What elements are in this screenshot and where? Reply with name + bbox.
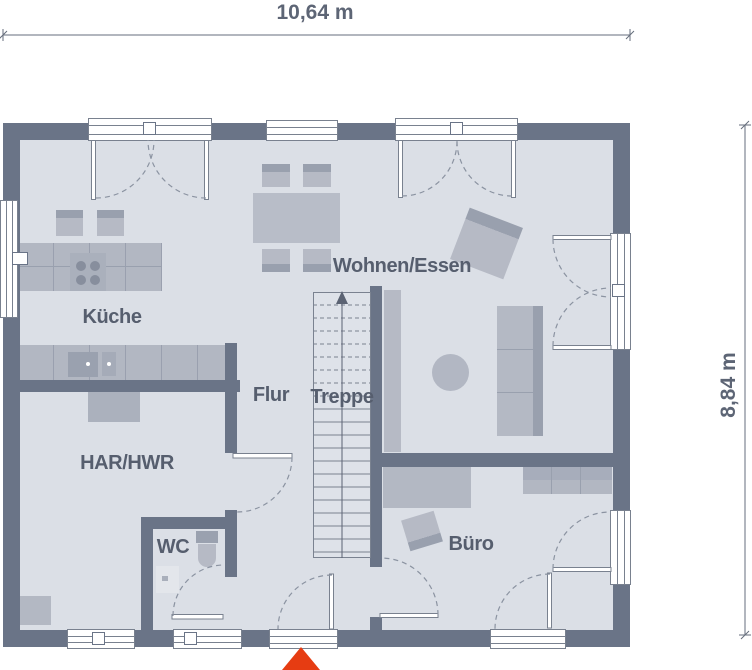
linework-overlay: [0, 0, 752, 670]
floor-plan: 10,64 m 8,84 m: [0, 0, 752, 670]
room-label-buero: Büro: [421, 533, 521, 556]
stairs: [313, 291, 371, 558]
dimension-line-top: [0, 29, 634, 41]
room-label-flur: Flur: [241, 384, 301, 407]
dimension-width-label: 10,64 m: [240, 1, 390, 25]
room-label-har-hwr: HAR/HWR: [52, 452, 202, 475]
dimension-height-label: 8,84 m: [717, 325, 743, 445]
room-label-wc: WC: [143, 536, 203, 559]
room-label-wohnen-essen: Wohnen/Essen: [312, 255, 492, 278]
room-label-treppe: Treppe: [302, 386, 382, 409]
room-label-kueche: Küche: [62, 306, 162, 329]
entrance-arrow-icon: [282, 647, 320, 670]
